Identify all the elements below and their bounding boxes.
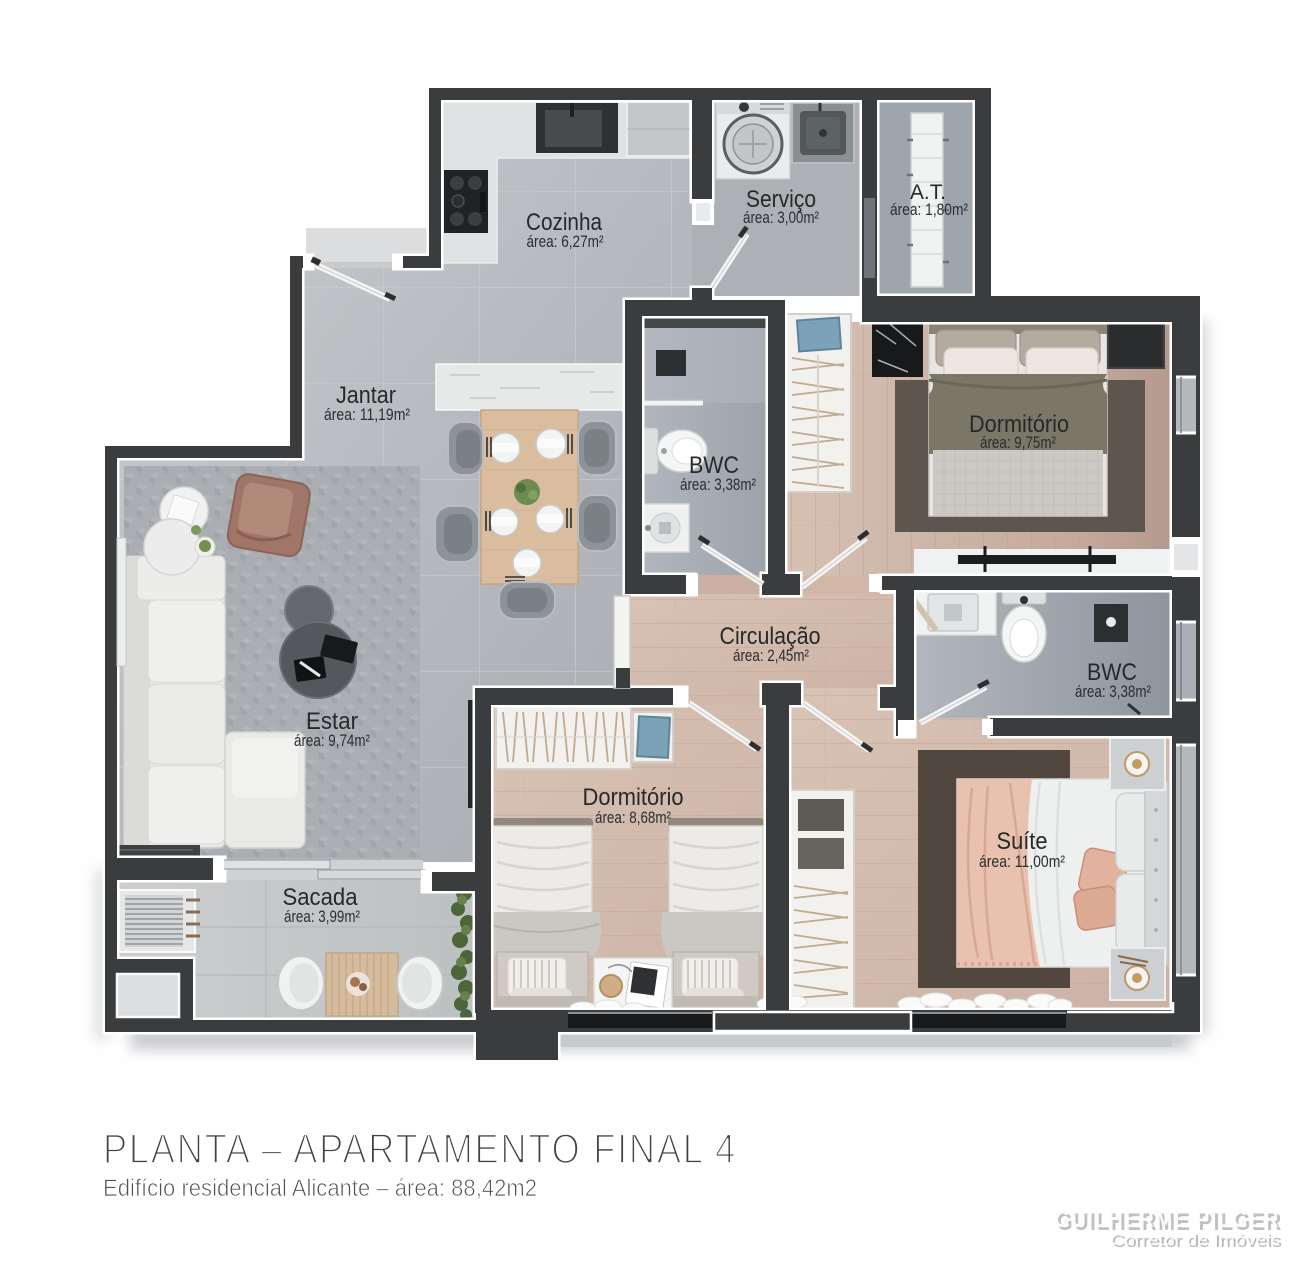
- svg-text:Dormitório: Dormitório: [583, 784, 684, 811]
- svg-text:área: 11,19m²: área: 11,19m²: [324, 405, 410, 424]
- svg-text:área: 9,74m²: área: 9,74m²: [294, 731, 370, 750]
- svg-text:área: 3,38m²: área: 3,38m²: [1075, 682, 1151, 701]
- svg-text:Edifício residencial Alicante: Edifício residencial Alicante – área: 88…: [103, 1175, 537, 1202]
- svg-text:área: 6,27m²: área: 6,27m²: [527, 232, 604, 251]
- svg-text:área: 11,00m²: área: 11,00m²: [979, 852, 1065, 871]
- svg-text:área: 3,99m²: área: 3,99m²: [284, 907, 360, 926]
- svg-text:área: 8,68m²: área: 8,68m²: [595, 808, 671, 827]
- svg-text:área: 2,45m²: área: 2,45m²: [733, 646, 809, 665]
- svg-text:área: 3,38m²: área: 3,38m²: [680, 475, 756, 494]
- svg-text:Suíte: Suíte: [997, 828, 1048, 855]
- svg-text:Corretor de Imóveis: Corretor de Imóveis: [1110, 1230, 1280, 1249]
- svg-text:área: 3,00m²: área: 3,00m²: [743, 208, 819, 227]
- svg-text:área: 9,75m²: área: 9,75m²: [980, 433, 1056, 452]
- svg-text:área: 1,80m²: área: 1,80m²: [890, 200, 968, 219]
- svg-text:PLANTA – APARTAMENTO FINAL 4: PLANTA – APARTAMENTO FINAL 4: [103, 1125, 737, 1172]
- svg-text:GUILHERME PILGER: GUILHERME PILGER: [1054, 1206, 1280, 1233]
